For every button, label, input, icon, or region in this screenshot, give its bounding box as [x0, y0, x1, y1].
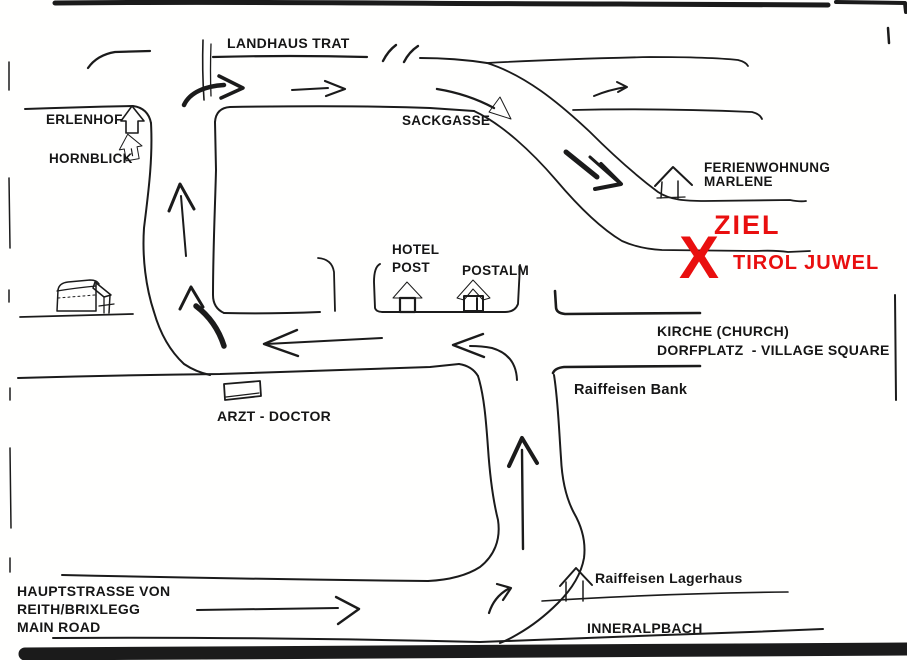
village-road-branch-corner	[459, 364, 478, 376]
top-road-upper-right	[420, 58, 487, 63]
label-hornblick: HORNBLICK	[49, 152, 133, 167]
scan-right-line	[895, 295, 896, 400]
south-branch-right-edge	[500, 375, 585, 643]
marlene-house-roof-icon	[655, 167, 692, 198]
inneralpbach-road-upper-line	[542, 592, 788, 601]
scan-bottom-edge	[25, 649, 907, 654]
village-road-upper-mid	[224, 312, 320, 313]
label-marlene: MARLENE	[704, 175, 773, 190]
top-road-upper-mid	[213, 56, 367, 57]
main-road-upper-line	[62, 575, 428, 581]
loop-road-left-edge	[143, 123, 210, 375]
north-arrow-branch	[522, 450, 523, 549]
east-arrow-main-road	[197, 608, 338, 610]
label-dorfplatz: DORFPLATZ - VILLAGE SQUARE	[657, 343, 890, 358]
west-arrow-long	[266, 338, 382, 344]
label-landhaus-trat: LANDHAUS TRAT	[227, 36, 350, 51]
bank-block-edge	[553, 366, 700, 373]
road-break-slash-1	[383, 45, 396, 61]
east-arrow-main-road-head	[336, 597, 359, 624]
turn-north-loop-arrow	[196, 306, 224, 346]
top-road-upper-far-right	[487, 57, 748, 66]
hotel-post-house-roof-icon	[393, 282, 422, 298]
postalm-house-body-icon	[464, 296, 483, 311]
east-dash-top-right	[594, 87, 626, 96]
scan-top-edge	[55, 2, 828, 5]
hotel-block-left-stub	[318, 258, 335, 311]
south-branch-left-edge	[428, 376, 499, 581]
turn-north-main-arrow	[489, 589, 508, 613]
label-tirol-juwel: TIROL JUWEL	[733, 252, 879, 274]
route-arrows	[169, 76, 627, 624]
erlenhof-house-outline-icon	[121, 106, 144, 133]
label-raiffeisen-bank: Raiffeisen Bank	[574, 383, 687, 399]
label-inneralpbach: INNERALPBACH	[587, 621, 703, 636]
label-raiffeisen-lagerhaus: Raiffeisen Lagerhaus	[595, 571, 743, 586]
loop-road-right-edge	[213, 122, 224, 313]
hotel-post-house-body-icon	[400, 298, 415, 312]
scan-right-tick	[888, 28, 889, 43]
scan-top-right-edge	[836, 2, 906, 12]
label-kirche: KIRCHE (CHURCH)	[657, 324, 789, 339]
label-erlenhof: ERLENHOF	[46, 113, 123, 128]
label-hauptstrasse-2: REITH/BRIXLEGG	[17, 602, 140, 617]
sackgasse-curve-arrow	[437, 89, 494, 108]
top-road-lower-right	[573, 109, 762, 119]
north-arrow-loop	[181, 196, 186, 256]
label-arzt-doctor: ARZT - DOCTOR	[217, 409, 331, 424]
top-road-upper-left	[88, 51, 150, 68]
scan-left-edge-dashes	[9, 62, 11, 572]
barn-sketch-icon	[57, 280, 114, 313]
sackgasse-curve-arrow-head	[489, 97, 511, 119]
road-break-slash-2	[404, 46, 418, 62]
landmark-icons	[57, 106, 692, 601]
label-sackgasse: SACKGASSE	[402, 114, 490, 129]
kirche-block-edge	[555, 291, 700, 314]
hand-drawn-map: LANDHAUS TRAT ERLENHOF HORNBLICK SACKGAS…	[0, 0, 907, 660]
village-road-lower-edge	[18, 364, 459, 378]
label-hotel: HOTEL	[392, 243, 439, 258]
label-post: POST	[392, 261, 430, 276]
label-postalm: POSTALM	[462, 264, 529, 279]
destination-x-mark: X	[679, 234, 719, 282]
village-road-upper-west	[20, 314, 133, 317]
label-hauptstrasse-3: MAIN ROAD	[17, 620, 101, 635]
east-arrow-top	[292, 88, 328, 90]
label-hauptstrasse-1: HAUPTSTRASSE VON	[17, 584, 170, 599]
label-ziel: ZIEL	[714, 211, 781, 241]
main-road-lower-line	[53, 629, 823, 642]
southeast-arrow-stroke-1	[566, 152, 597, 177]
